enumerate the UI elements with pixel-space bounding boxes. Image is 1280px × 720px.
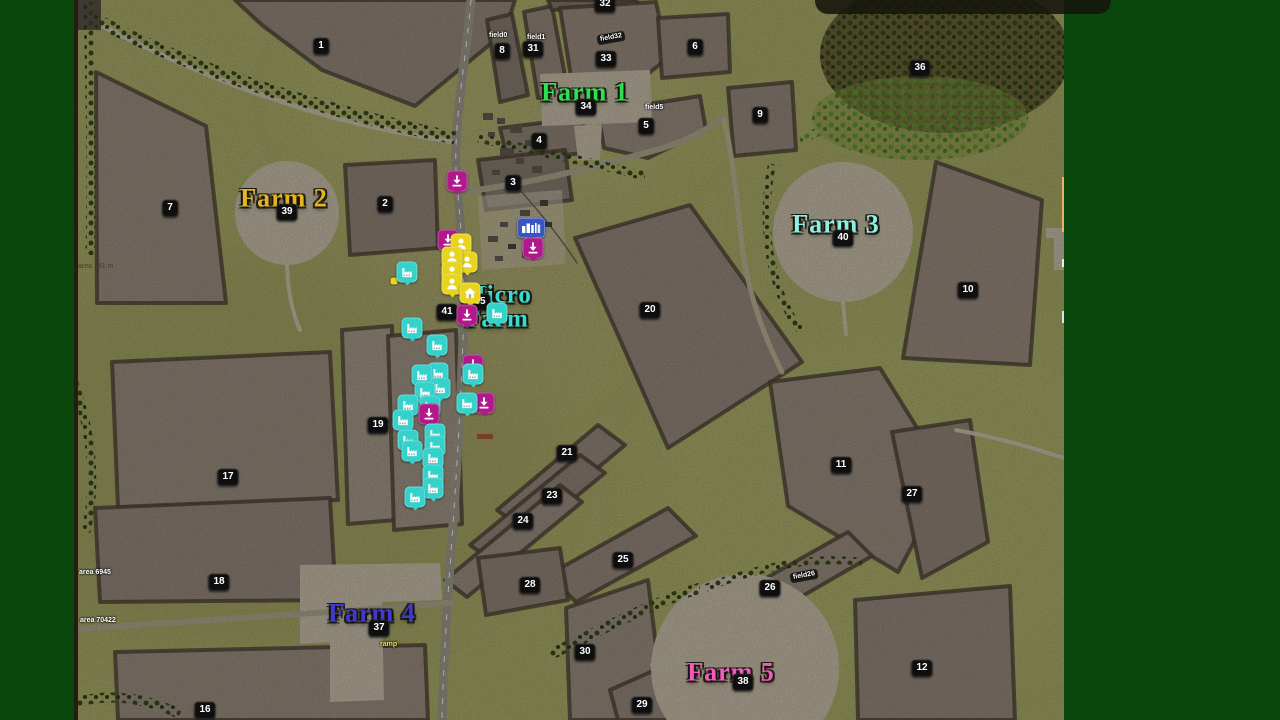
production-icon[interactable] <box>423 478 444 499</box>
unload-icon[interactable] <box>447 171 468 192</box>
map-edge-shadow <box>74 0 78 720</box>
hud-panel-edge <box>815 0 1111 14</box>
house-icon[interactable] <box>460 283 481 304</box>
production-icon[interactable] <box>402 441 423 462</box>
unload-icon[interactable] <box>457 305 478 326</box>
letterbox-left <box>0 0 74 720</box>
production-icon[interactable] <box>393 410 414 431</box>
production-icon[interactable] <box>402 318 423 339</box>
production-icon[interactable] <box>463 364 484 385</box>
map-view[interactable]: Farm 1Farm 2Farm 3Micro FarmFarm 4Farm 5… <box>0 0 1280 720</box>
production-icon[interactable] <box>405 487 426 508</box>
production-icon[interactable] <box>427 335 448 356</box>
production-icon[interactable] <box>397 262 418 283</box>
letterbox-right <box>1064 0 1280 720</box>
production-icon[interactable] <box>457 393 478 414</box>
unload-icon[interactable] <box>419 404 440 425</box>
shop-icon[interactable] <box>517 218 545 238</box>
production-icon[interactable] <box>487 303 508 324</box>
unload-icon[interactable] <box>523 238 544 259</box>
